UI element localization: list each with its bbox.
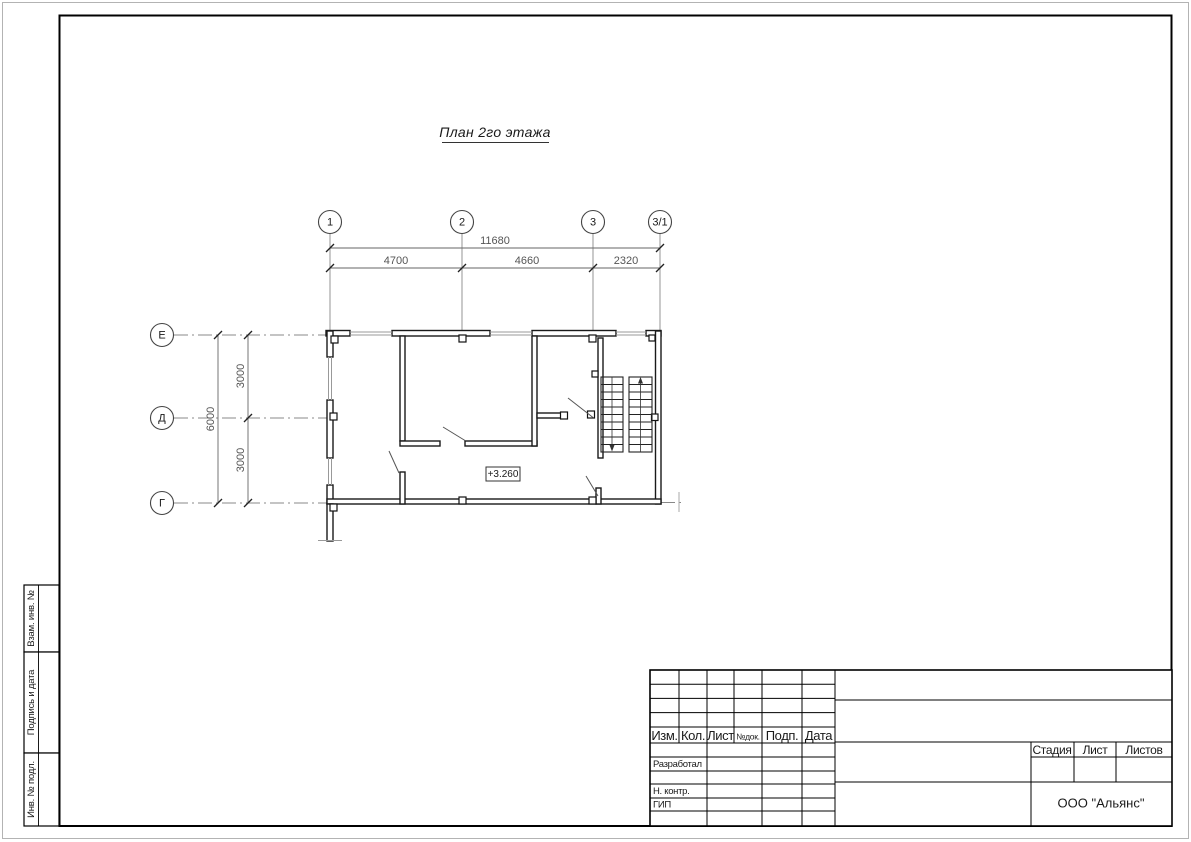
side-label-podpis: Подпись и дата <box>26 669 37 735</box>
dim-vseg-2: 3000 <box>235 448 247 472</box>
side-stamp-labels: Взам. инв. № Подпись и дата Инв. № подл. <box>24 585 59 826</box>
tb-company-name: ООО "Альянс" <box>1058 796 1145 811</box>
axis-circle-g: Г <box>151 492 174 515</box>
elevation-mark: +3.260 <box>486 467 520 481</box>
axis-label-2: 2 <box>459 217 465 229</box>
page-title: План 2го этажа <box>439 124 550 140</box>
drawing-title: План 2го этажа <box>439 124 550 143</box>
title-block: Изм. Кол. Лист №док. Подп. Дата Разработ… <box>650 670 1172 826</box>
axis-label-3: 3 <box>590 217 596 229</box>
dim-seg-1: 4700 <box>384 255 408 267</box>
tb-role-gip: ГИП <box>653 800 671 811</box>
axis-label-e: Е <box>158 330 165 342</box>
dim-seg-2: 4660 <box>515 255 539 267</box>
axis-label-3-1: 3/1 <box>652 217 667 229</box>
tb-role-nkontr: Н. контр. <box>653 786 690 797</box>
dim-seg-3: 2320 <box>614 255 638 267</box>
axis-circle-e: Е <box>151 324 174 347</box>
dim-total-height: 6000 <box>205 407 217 431</box>
axis-label-g: Г <box>159 498 165 510</box>
axis-circle-3: 3 <box>582 211 605 234</box>
axis-circle-3-1: 3/1 <box>649 211 672 234</box>
tb-header-kol: Кол. <box>681 728 705 743</box>
tb-header-ndok: №док. <box>736 732 759 742</box>
axis-label-1: 1 <box>327 217 333 229</box>
tb-stage-list: Лист <box>1083 743 1109 757</box>
drawing-sheet: План 2го этажа 1 2 3 3/1 <box>0 0 1191 842</box>
tb-header-podp: Подп. <box>766 728 799 743</box>
side-label-vzam: Взам. инв. № <box>26 590 37 646</box>
tb-role-razrabotal: Разработал <box>653 759 702 770</box>
axis-circle-2: 2 <box>451 211 474 234</box>
tb-stage-listov: Листов <box>1125 743 1162 757</box>
axis-label-d: Д <box>158 413 166 425</box>
dim-vseg-1: 3000 <box>235 364 247 388</box>
side-label-inv: Инв. № подл. <box>26 761 37 818</box>
axis-circle-1: 1 <box>319 211 342 234</box>
tb-header-list: Лист <box>707 728 734 743</box>
elevation-value: +3.260 <box>488 469 519 480</box>
drawing-canvas: План 2го этажа 1 2 3 3/1 <box>0 0 1191 842</box>
tb-header-data: Дата <box>805 728 833 743</box>
tb-stage-stadiya: Стадия <box>1032 743 1071 757</box>
axis-circle-d: Д <box>151 407 174 430</box>
tb-header-izm: Изм. <box>651 728 677 743</box>
dim-total-width: 11680 <box>480 235 510 247</box>
